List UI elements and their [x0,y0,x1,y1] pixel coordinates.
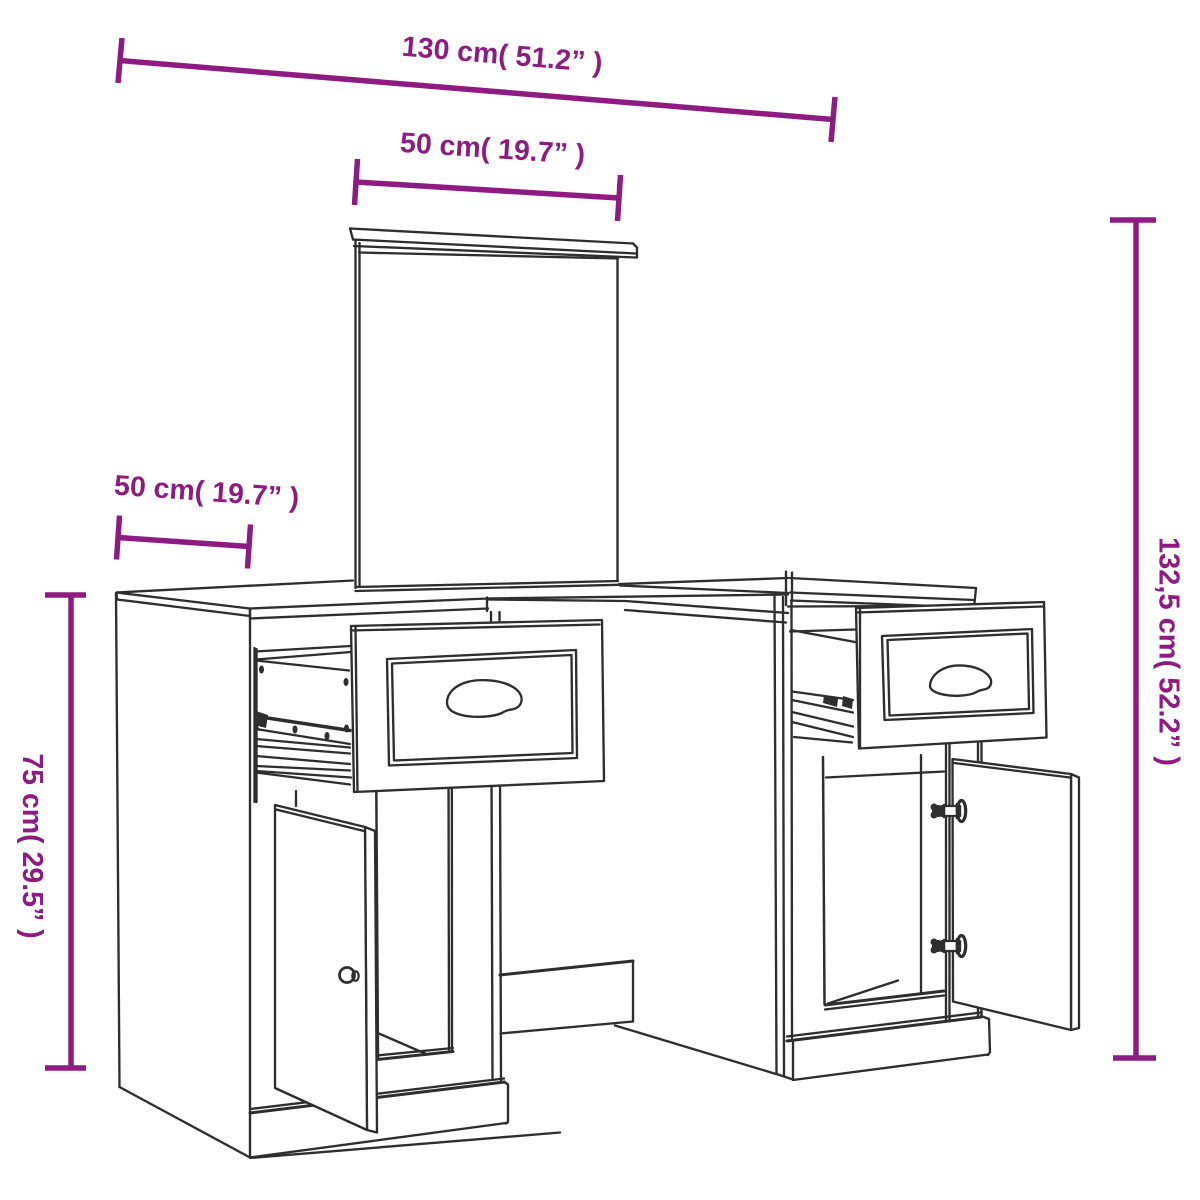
svg-text:132,5 cm( 52.2” ): 132,5 cm( 52.2” ) [1153,537,1185,766]
svg-text:75 cm( 29.5” ): 75 cm( 29.5” ) [16,753,48,938]
